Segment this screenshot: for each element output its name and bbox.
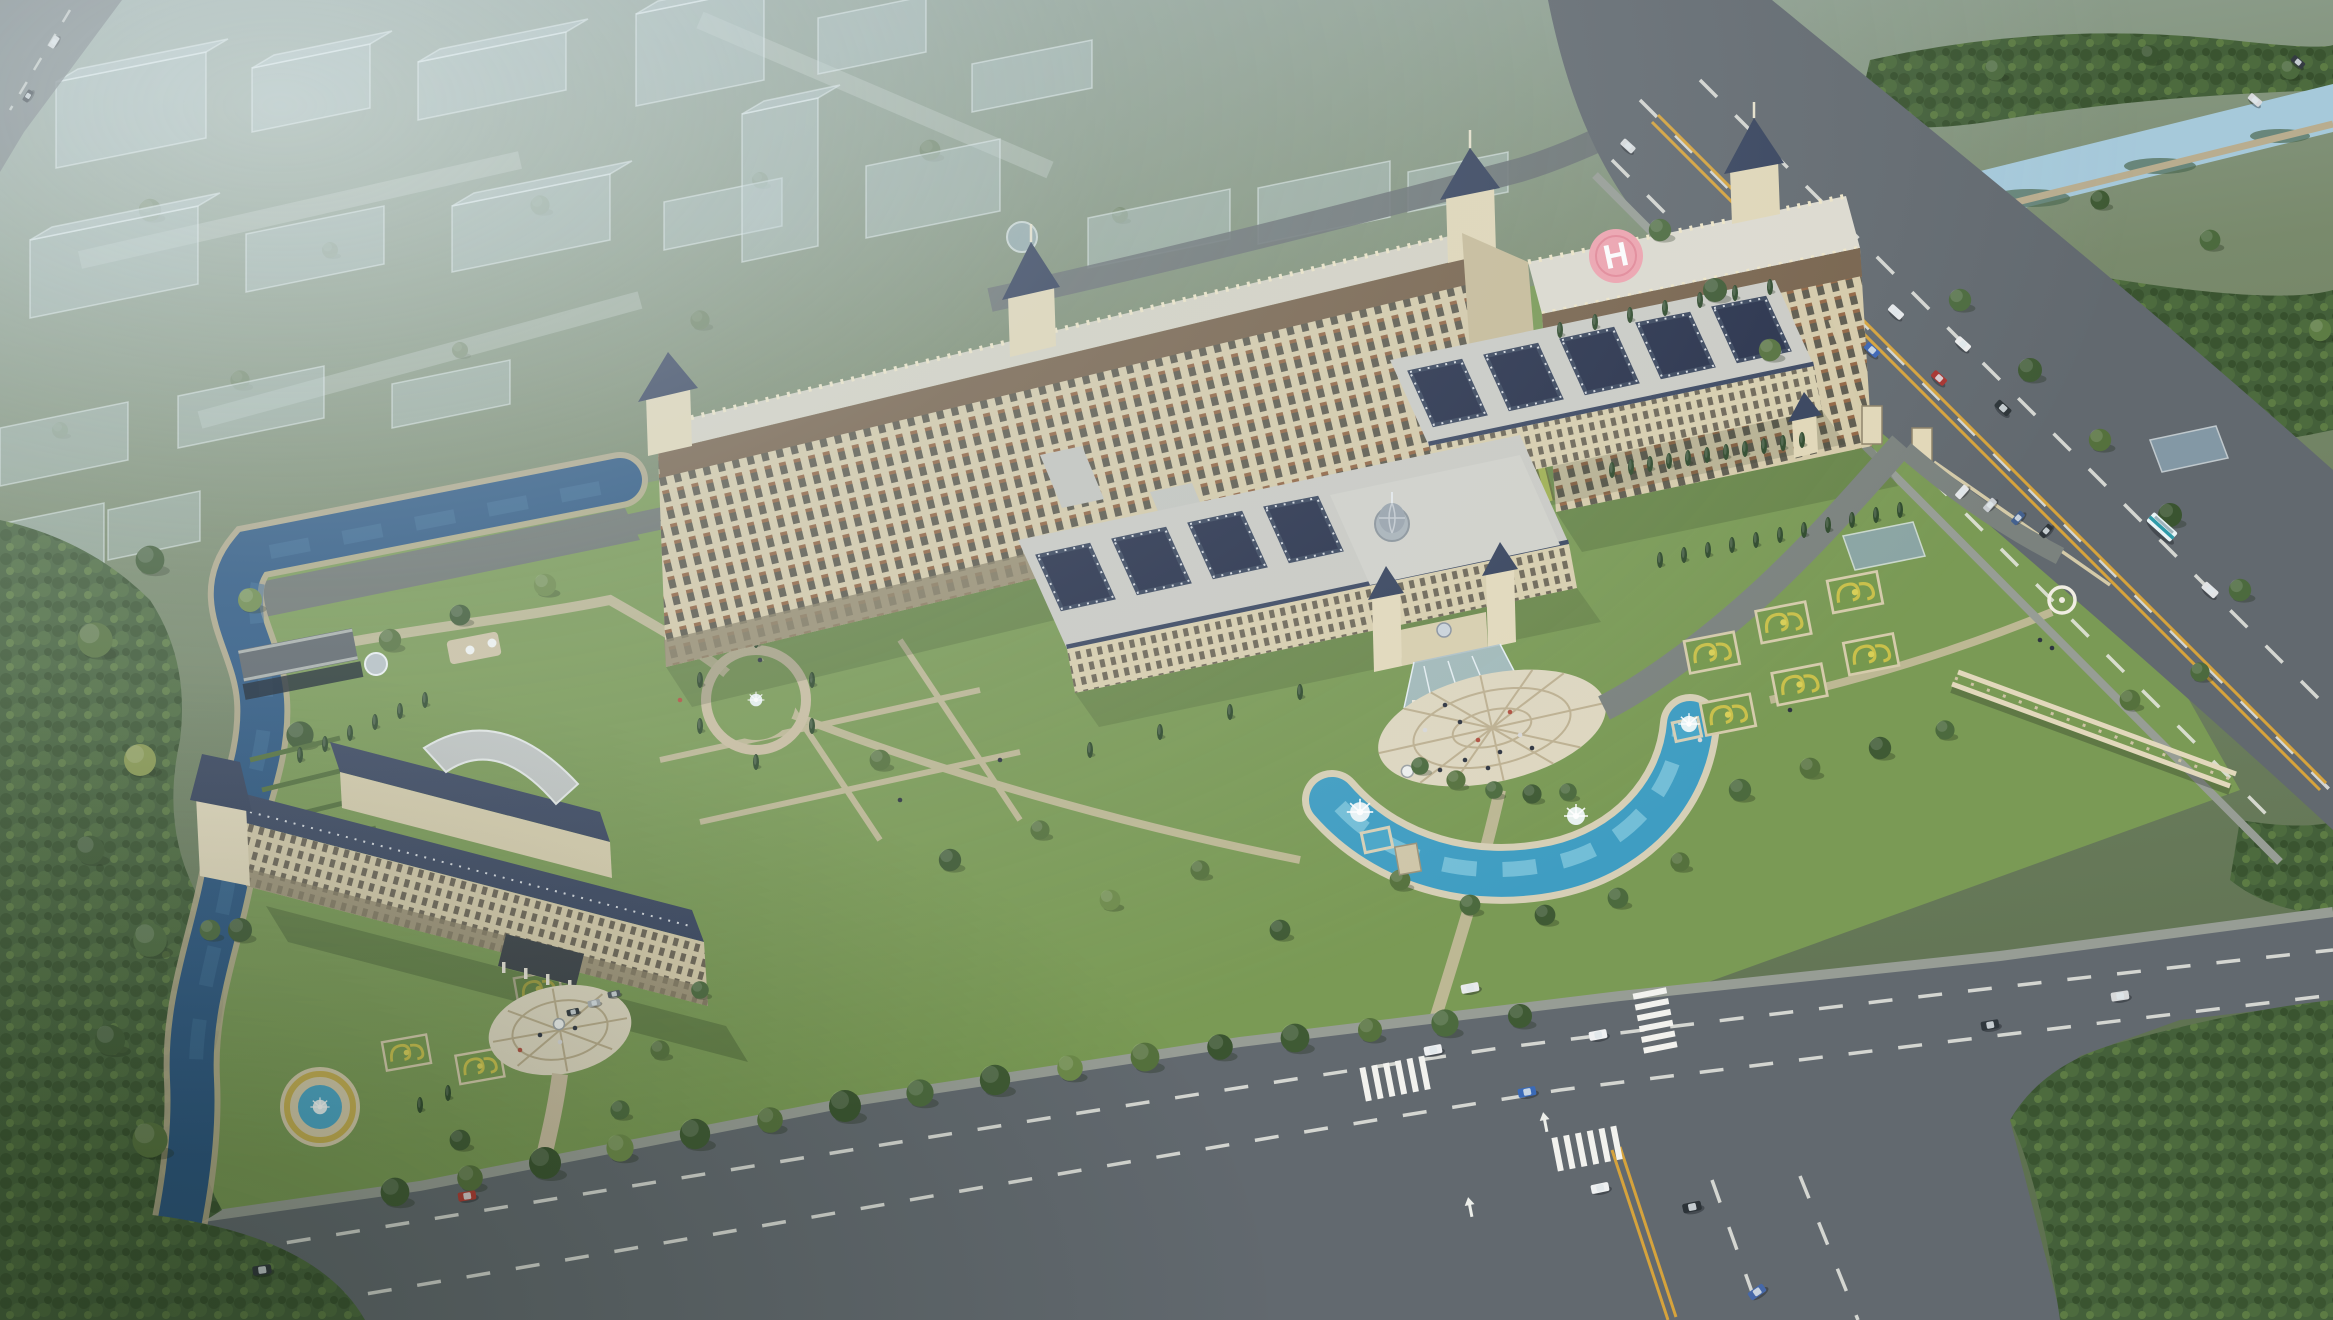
aerial-rendering-canvas: H (0, 0, 2333, 1320)
masterplan-rendering: H (0, 0, 2333, 1320)
corner-vignette (0, 0, 2333, 1320)
